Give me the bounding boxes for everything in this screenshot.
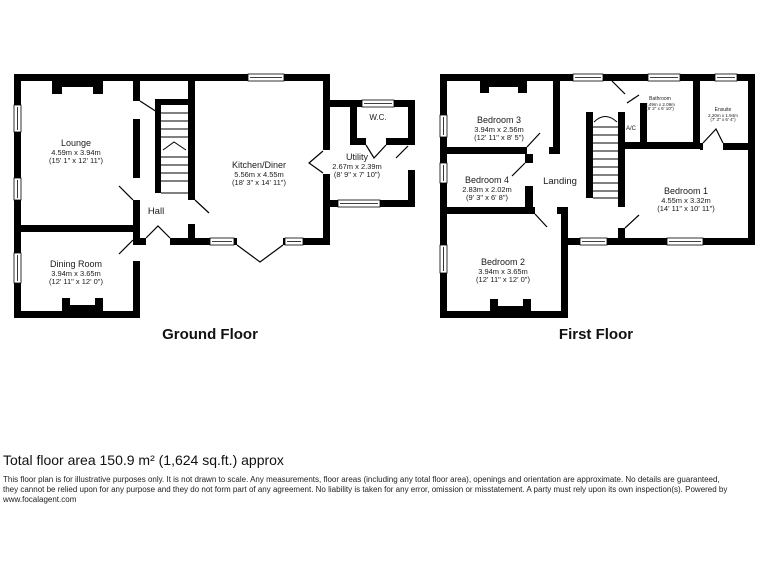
room-label-dining-room: Dining Room 3.94m x 3.65m (12' 11" x 12'… (49, 259, 103, 287)
room-name: Hall (148, 206, 164, 217)
room-label-utility: Utility 2.67m x 2.39m (8' 9" x 7' 10") (332, 152, 382, 180)
room-dim-imperial: (12' 11" x 12' 0") (49, 278, 103, 287)
door-swing-icon (625, 215, 639, 228)
room-label-wc: W.C. (369, 113, 386, 122)
room-label-kitchen-diner: Kitchen/Diner 5.56m x 4.55m (18' 3" x 14… (232, 160, 286, 188)
ground-floor-stairs-icon (161, 113, 188, 193)
room-label-hall: Hall (148, 206, 164, 217)
first-floor-title: First Floor (559, 326, 633, 343)
window-icon (338, 200, 380, 207)
room-label-bedroom-4: Bedroom 4 2.83m x 2.02m (9' 3" x 6' 8") (462, 175, 512, 203)
window-icon (248, 74, 284, 81)
room-label-ensuite: Ensuite 2.20m x 1.94m (7' 3" x 6' 4") (708, 108, 738, 123)
ground-floor-title: Ground Floor (162, 326, 258, 343)
door-swing-icon (146, 226, 170, 238)
door-swing-icon (195, 200, 209, 213)
room-name: Landing (543, 176, 577, 187)
first-floor-stairs-icon (593, 117, 618, 199)
room-dim-imperial: (8' 9" x 7' 10") (332, 171, 382, 180)
window-icon (715, 74, 737, 81)
door-swing-icon (237, 245, 283, 262)
door-swing-icon (512, 163, 525, 176)
room-dim-imperial: (7' 3" x 6' 4") (708, 118, 738, 123)
window-icon (285, 238, 303, 245)
door-swing-icon (309, 151, 323, 173)
door-swing-icon (527, 133, 540, 147)
window-icon (440, 163, 447, 183)
room-label-landing: Landing (543, 176, 577, 187)
window-icon (210, 238, 234, 245)
room-label-bathroom: Bathroom 2.49m x 2.09m (8' 2" x 6' 10") (645, 97, 675, 112)
room-label-bedroom-1: Bedroom 1 4.55m x 3.32m (14' 11" x 10' 1… (657, 186, 715, 214)
room-dim-imperial: (15' 1" x 12' 11") (49, 157, 103, 166)
room-name: W.C. (369, 113, 386, 122)
door-swing-icon (535, 214, 547, 227)
room-dim-imperial: (18' 3" x 14' 11") (232, 179, 286, 188)
window-icon (440, 245, 447, 273)
door-swing-icon (119, 186, 133, 200)
window-icon (14, 178, 21, 200)
disclaimer-line-1: This floor plan is for illustrative purp… (3, 475, 767, 485)
door-swing-icon (627, 95, 639, 103)
room-dim-imperial: (12' 11" x 12' 0") (476, 276, 530, 285)
window-icon (667, 238, 703, 245)
room-label-ac: A/C (626, 126, 636, 133)
room-dim-imperial: (12' 11" x 8' 5") (474, 134, 524, 143)
floorplan-page: Lounge 4.59m x 3.94m (15' 1" x 12' 11") … (0, 0, 768, 576)
window-icon (580, 238, 607, 245)
room-label-lounge: Lounge 4.59m x 3.94m (15' 1" x 12' 11") (49, 138, 103, 166)
window-icon (14, 105, 21, 132)
door-swing-icon (396, 146, 408, 158)
room-name: A/C (626, 126, 636, 133)
room-label-bedroom-2: Bedroom 2 3.94m x 3.65m (12' 11" x 12' 0… (476, 257, 530, 285)
room-dim-imperial: (9' 3" x 6' 8") (462, 194, 512, 203)
door-swing-icon (119, 240, 133, 254)
door-swing-icon (140, 101, 157, 112)
disclaimer-line-3: www.focalagent.com (3, 495, 767, 505)
room-dim-imperial: (8' 2" x 6' 10") (645, 107, 675, 112)
disclaimer-line-2: they cannot be relied upon for any purpo… (3, 485, 767, 495)
window-icon (440, 115, 447, 137)
window-icon (14, 253, 21, 283)
total-floor-area: Total floor area 150.9 m² (1,624 sq.ft.)… (3, 452, 284, 468)
room-dim-imperial: (14' 11" x 10' 11") (657, 205, 715, 214)
room-label-bedroom-3: Bedroom 3 3.94m x 2.56m (12' 11" x 8' 5"… (474, 115, 524, 143)
door-swing-icon (703, 129, 723, 143)
window-icon (362, 100, 394, 107)
window-icon (648, 74, 680, 81)
window-icon (573, 74, 603, 81)
disclaimer-text: This floor plan is for illustrative purp… (3, 475, 767, 504)
door-swing-icon (612, 81, 625, 94)
